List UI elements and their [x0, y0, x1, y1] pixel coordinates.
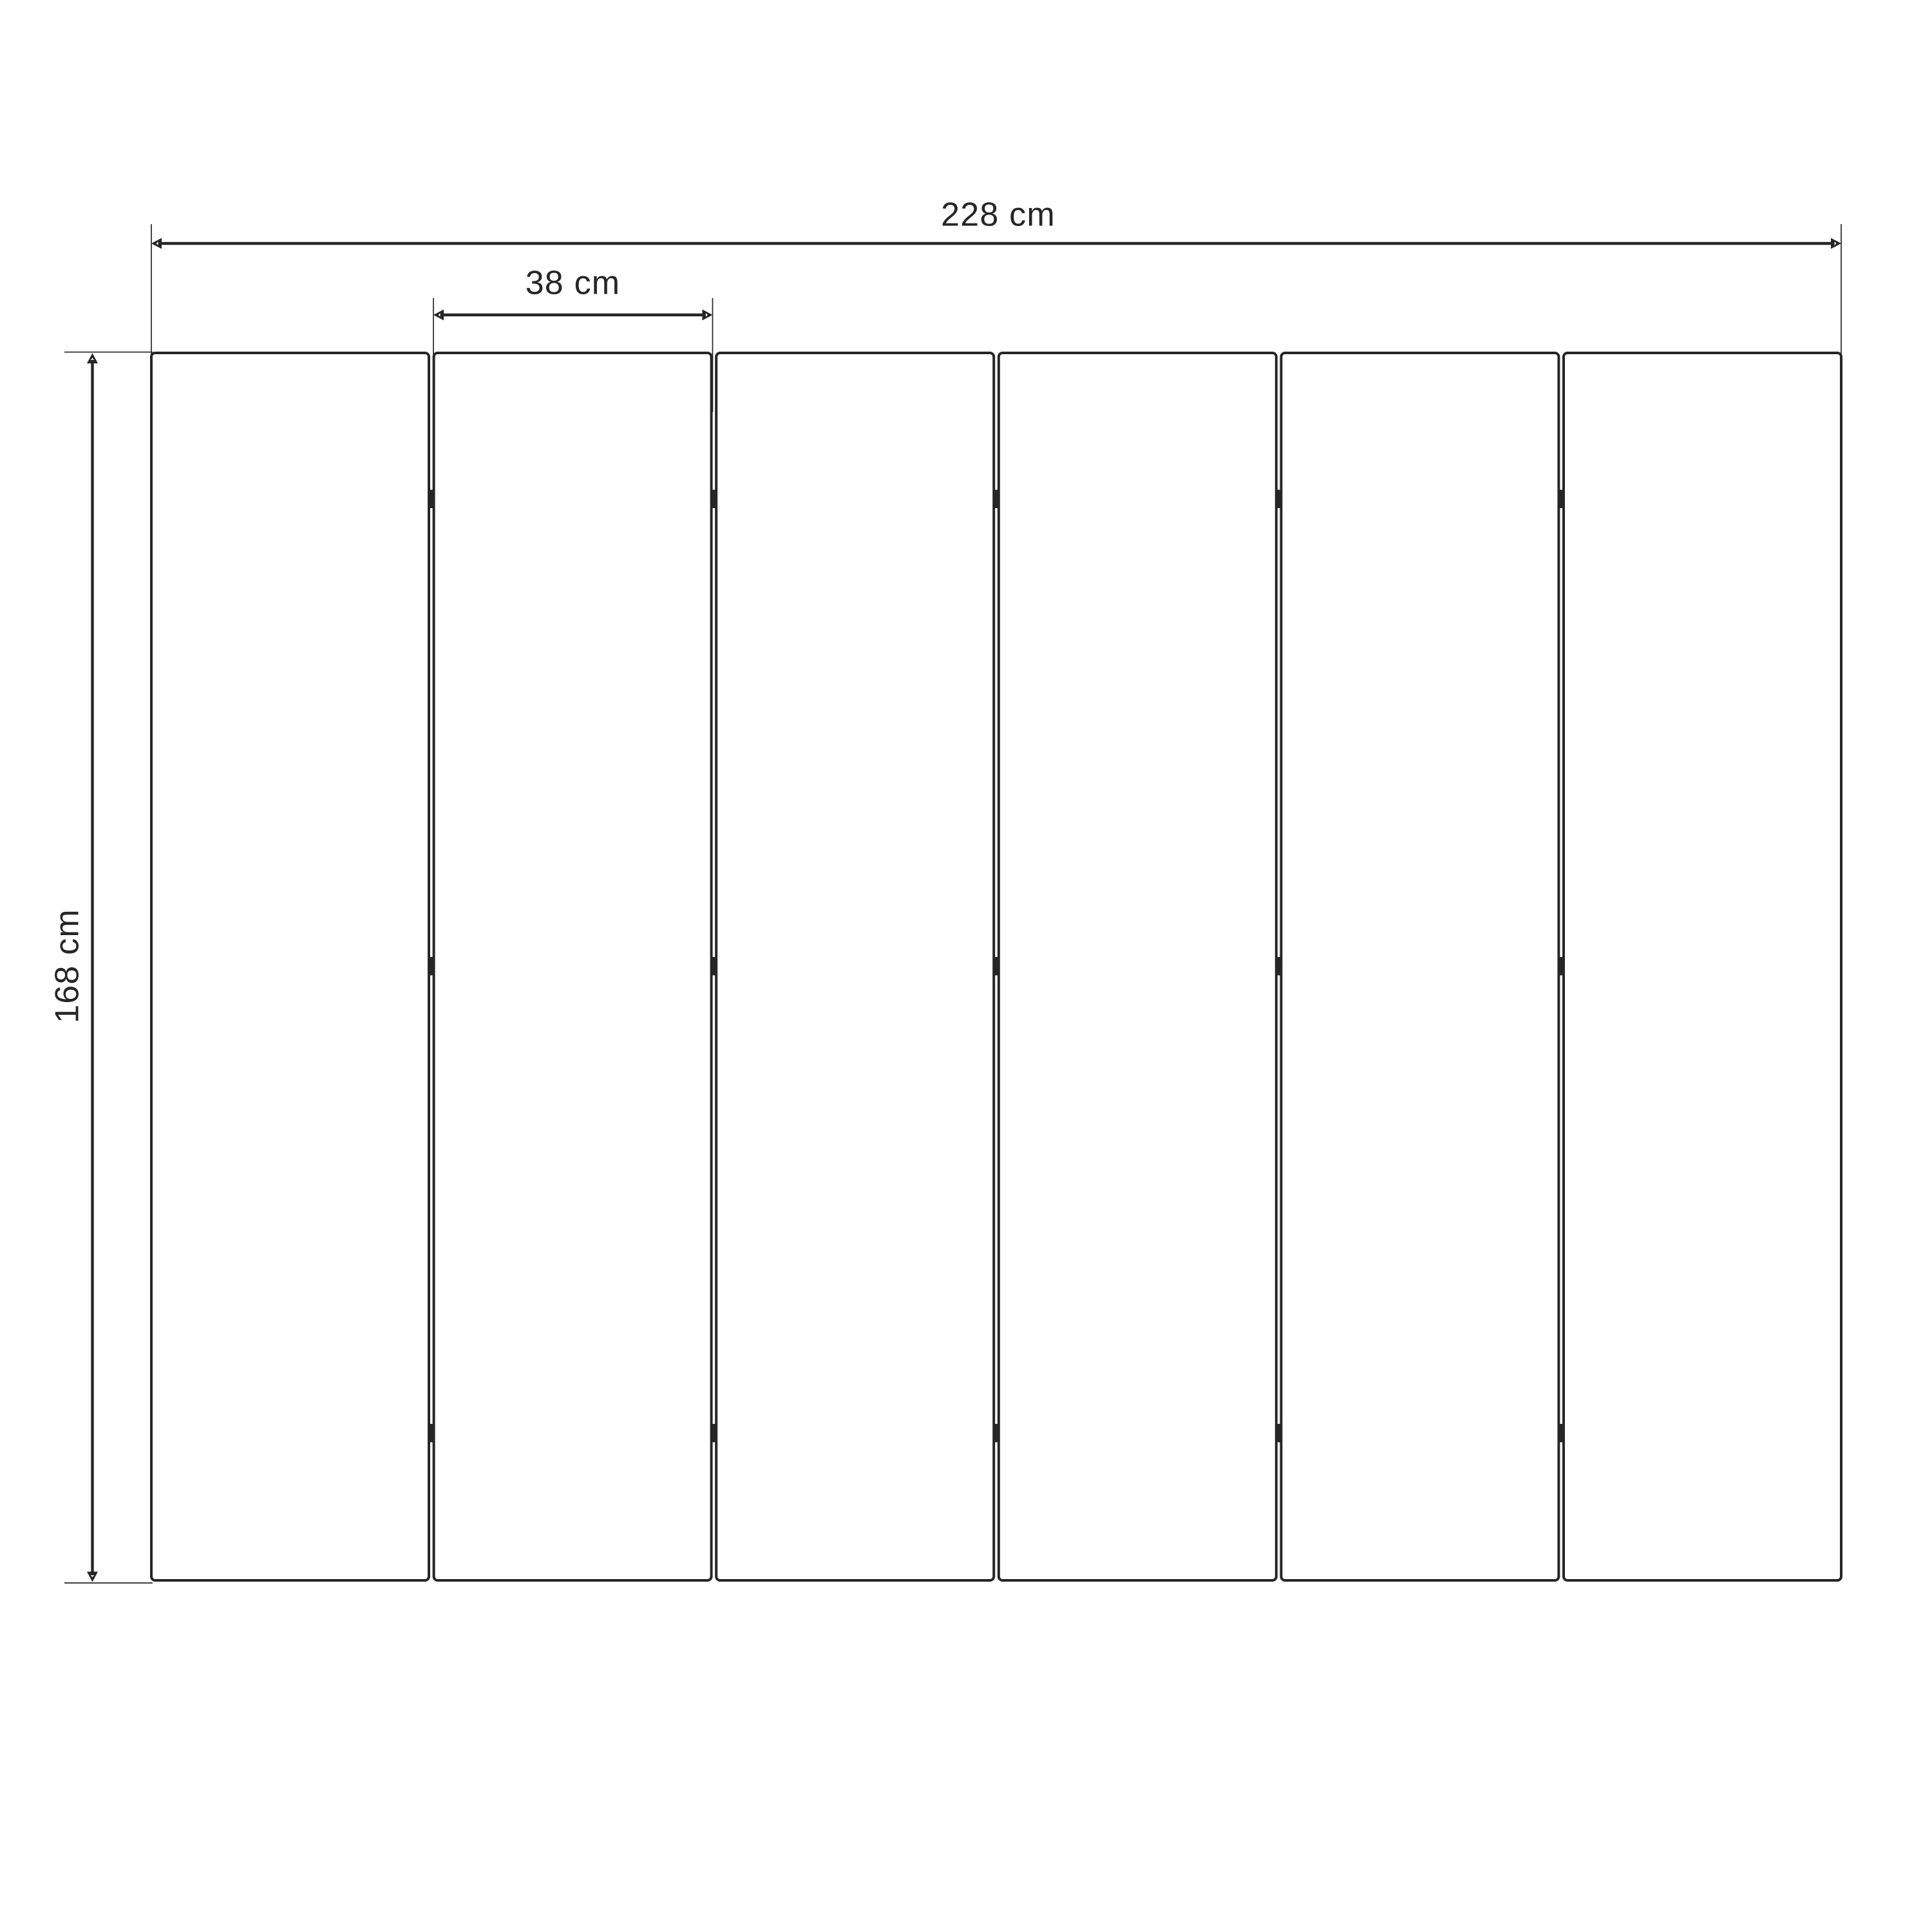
svg-text:38 cm: 38 cm	[526, 265, 621, 302]
svg-text:168 cm: 168 cm	[49, 909, 86, 1023]
svg-text:228 cm: 228 cm	[941, 196, 1056, 234]
